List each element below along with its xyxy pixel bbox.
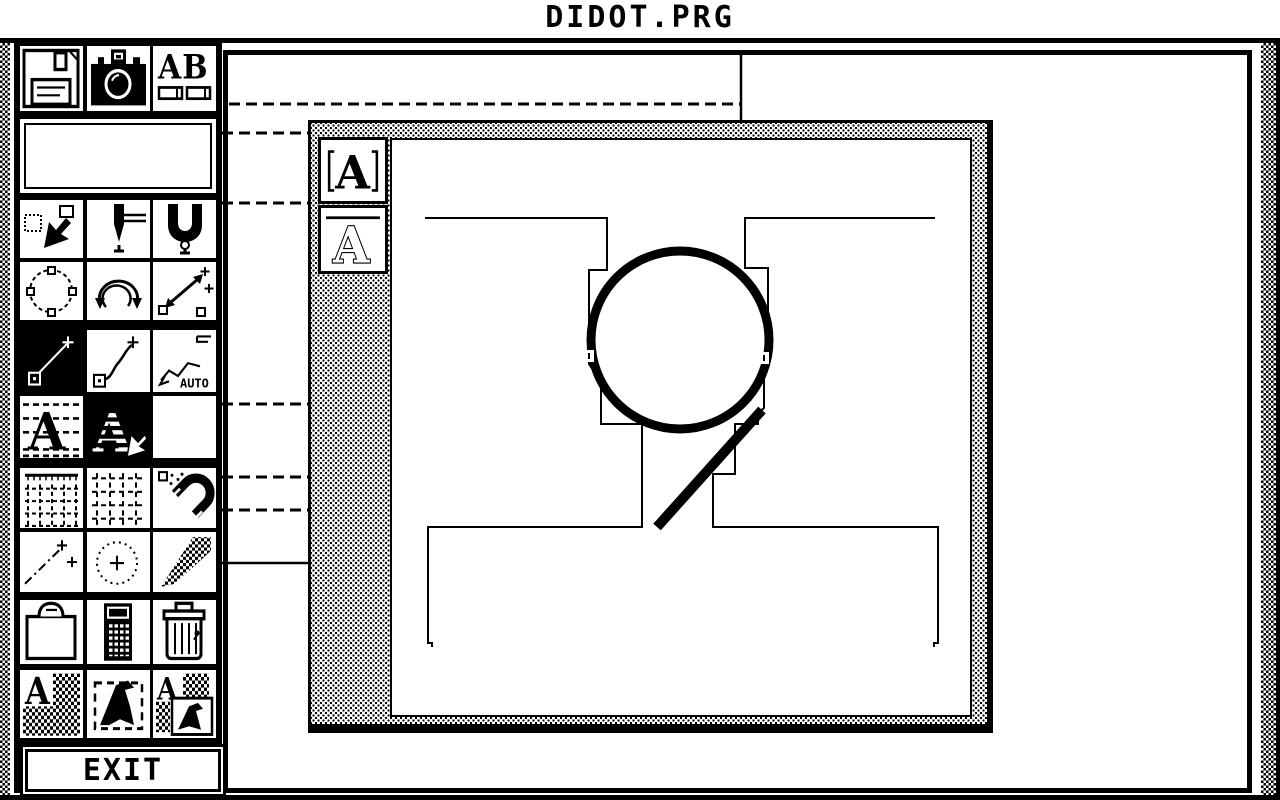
clipboard-icon [20,600,83,664]
tool-font-ab[interactable]: AB [153,46,216,111]
letter-window-icon: A [153,670,216,738]
toolbox: EXIT ABAUTOAAAA [14,40,222,793]
tool-calculator[interactable] [87,600,150,664]
screen-edge-left [0,43,10,800]
tool-clamp[interactable] [153,200,216,258]
tool-magnet[interactable] [153,468,216,528]
blank-icon [153,396,216,458]
screen-edge-right-border [1276,43,1280,800]
exit-button[interactable]: EXIT [20,744,226,797]
letter-hatched-icon: A [87,396,150,458]
svg-text:A: A [24,670,51,714]
magnet-icon [153,468,216,528]
tool-rotate[interactable] [87,262,150,320]
svg-text:AB: AB [157,47,209,87]
tool-move-points[interactable] [153,262,216,320]
svg-text:A: A [92,402,133,458]
tool-circle-points[interactable] [20,262,83,320]
letter-checker-icon: A [20,670,83,738]
circle-points-icon [20,262,83,320]
letter-guides-icon: A [20,396,83,458]
tool-trash[interactable] [153,600,216,664]
tool-circle-center[interactable] [87,532,150,592]
floppy-disk-icon [20,46,83,111]
window-title: DIDOT.PRG [545,0,735,35]
screen-edge-right [1261,43,1276,800]
pixel-wedge-icon [153,532,216,592]
glyph-drawing [392,140,966,711]
preview-box [24,123,212,189]
tool-clipboard[interactable] [20,600,83,664]
tool-letter-guides[interactable]: A [20,396,83,458]
grid-ruler-icon [20,468,83,528]
select-arrow-icon [20,200,83,258]
title-bar: DIDOT.PRG [0,0,1280,38]
a-bracketed-icon: A [321,140,385,201]
tool-curve[interactable] [87,330,150,392]
tool-camera[interactable] [87,46,150,111]
tool-knife[interactable] [87,200,150,258]
tool-grid-snap[interactable] [87,468,150,528]
letter-outline-button[interactable]: A [318,205,388,274]
circle-center-icon [87,532,150,592]
svg-text:A: A [334,145,370,200]
tool-letter-hatched[interactable]: A [87,396,150,458]
knife-icon [87,200,150,258]
tool-letter-window[interactable]: A [153,670,216,738]
font-ab-icon: AB [153,46,216,111]
grid-snap-icon [87,468,150,528]
letter-metrics-button[interactable]: A [318,137,388,204]
tool-line[interactable] [20,330,83,392]
tool-auto-trace[interactable]: AUTO [153,330,216,392]
tool-select-arrow[interactable] [20,200,83,258]
glyph-window: A A [308,120,993,733]
curve-icon [87,330,150,392]
calculator-icon [87,600,150,664]
svg-text:AUTO: AUTO [180,375,209,390]
tool-pixel-wedge[interactable] [153,532,216,592]
tool-glyph-select[interactable] [87,670,150,738]
measure-icon [20,532,83,592]
tool-blank [153,396,216,458]
glyph-select-icon [87,670,150,738]
tool-letter-checker[interactable]: A [20,670,83,738]
exit-label: EXIT [25,749,221,792]
auto-trace-icon: AUTO [153,330,216,392]
clamp-icon [153,200,216,258]
move-points-icon [153,262,216,320]
glyph-canvas[interactable] [390,138,972,717]
svg-text:A: A [332,217,371,271]
a-outlined-icon: A [321,208,385,271]
line-icon [20,330,83,392]
tool-floppy-disk[interactable] [20,46,83,111]
trash-icon [153,600,216,664]
tool-measure[interactable] [20,532,83,592]
tool-grid-ruler[interactable] [20,468,83,528]
rotate-icon [87,262,150,320]
preview-panel [20,119,216,193]
camera-icon [87,46,150,111]
